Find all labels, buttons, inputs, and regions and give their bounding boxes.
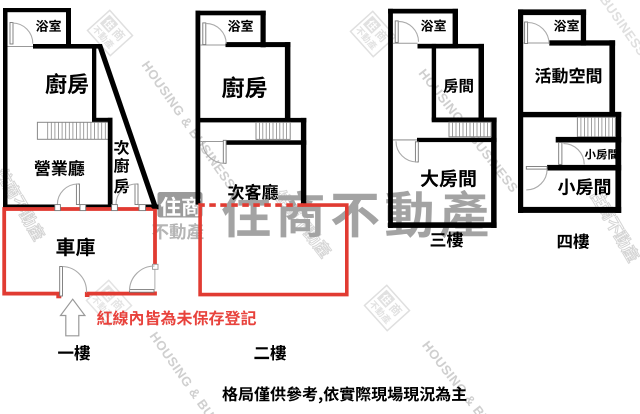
svg-text:HOUSING & BUSINESS: HOUSING & BUSINESS (147, 329, 247, 414)
svg-text:HOUSING & BUSINESS: HOUSING & BUSINESS (139, 58, 239, 192)
svg-text:HOUSING & BUSINESS: HOUSING & BUSINESS (419, 338, 525, 414)
